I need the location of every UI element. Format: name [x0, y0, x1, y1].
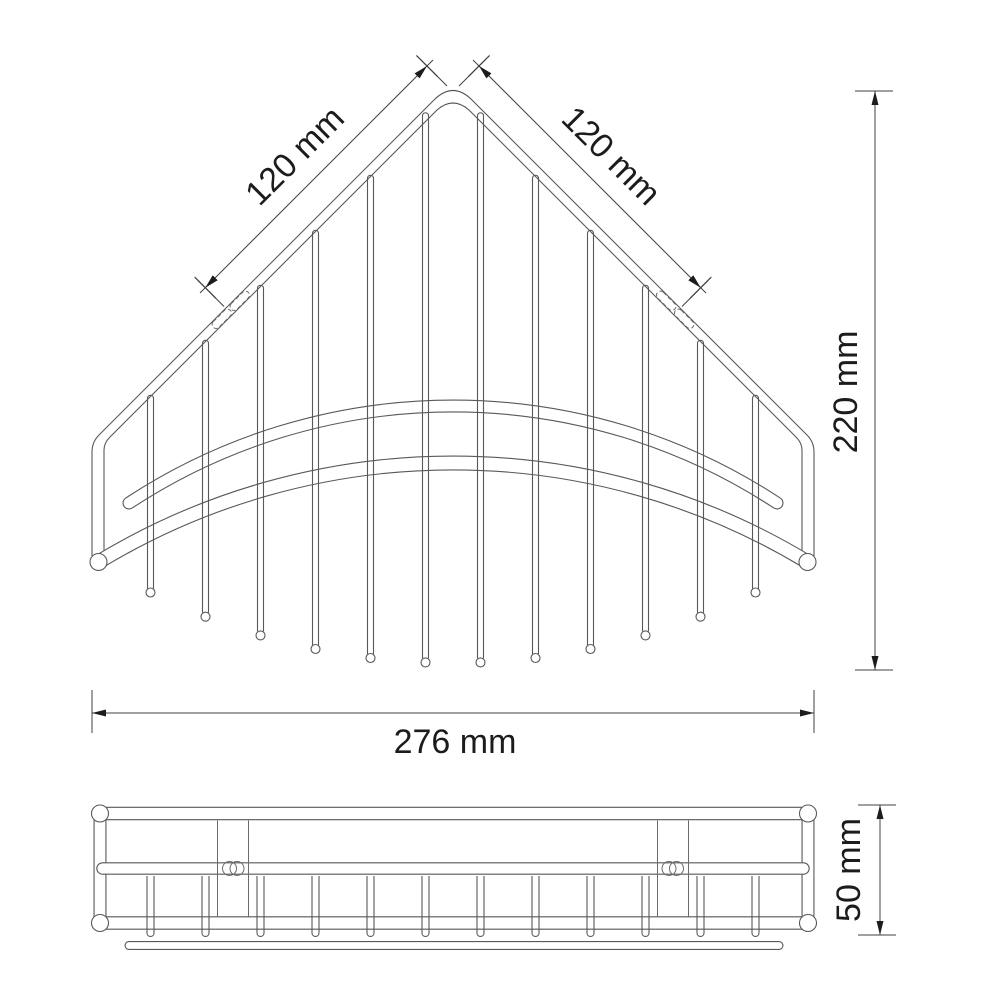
bottom-rail-left-cap — [92, 915, 109, 932]
drawing-canvas: 120 mm 120 mm 220 mm 276 mm 50 mm — [0, 0, 990, 990]
dimension-line — [200, 60, 433, 293]
front-rail-fill — [129, 406, 777, 503]
dimension-label: 220 mm — [827, 331, 865, 454]
top-rail-right-cap — [800, 805, 817, 822]
basket-wires-top — [146, 113, 760, 667]
dimension-width: 276 mm — [92, 690, 814, 761]
wire-loop — [476, 658, 485, 667]
arrowhead — [872, 91, 879, 105]
right-corner-post-cap — [799, 554, 816, 571]
wire-loop — [311, 645, 320, 654]
arrowhead — [877, 805, 884, 819]
front-view — [92, 805, 817, 946]
dimension-label: 120 mm — [238, 99, 352, 213]
basket-wire — [643, 285, 649, 631]
frame-outer-contour — [92, 91, 814, 557]
wire-loop — [751, 588, 760, 597]
wire-loop — [146, 588, 155, 597]
mounting-slot — [228, 289, 251, 312]
bottom-arc-fill — [99, 463, 808, 562]
dimension-edge-left: 120 mm — [195, 55, 447, 306]
wire-loop — [201, 612, 210, 621]
arrowhead — [877, 921, 884, 935]
bottom-rail-right-cap — [800, 915, 817, 932]
wire-loop — [641, 631, 650, 640]
dimension-depth: 220 mm — [827, 91, 893, 670]
arrowhead — [872, 656, 879, 670]
dimension-label: 276 mm — [394, 723, 517, 761]
top-view — [90, 91, 816, 667]
mounting-slot — [210, 307, 233, 330]
wire-loop — [696, 612, 705, 621]
basket-wire — [698, 340, 704, 612]
top-rail-left-cap — [92, 805, 109, 822]
basket-frame — [92, 91, 814, 557]
wire-loop — [421, 658, 430, 667]
dimension-line — [473, 60, 706, 293]
wire-loop — [531, 654, 540, 663]
technical-drawing-page: 120 mm 120 mm 220 mm 276 mm 50 mm — [0, 0, 990, 990]
mounting-slot — [673, 307, 696, 330]
dimension-label: 50 mm — [830, 818, 868, 922]
wire-loop — [256, 631, 265, 640]
left-corner-post-cap — [90, 554, 107, 571]
wire-loop — [366, 654, 375, 663]
basket-wire — [258, 285, 264, 631]
front-rail-tube — [129, 406, 777, 503]
arrowhead — [92, 710, 106, 717]
dimension-edge-right: 120 mm — [459, 55, 711, 306]
dimension-height: 50 mm — [830, 805, 896, 935]
basket-wire — [423, 113, 429, 659]
dimension-label: 120 mm — [554, 99, 668, 213]
bottom-arc-tube — [99, 463, 808, 562]
basket-wire — [588, 230, 594, 645]
wire-loop — [586, 645, 595, 654]
basket-wire — [203, 340, 209, 612]
arrowhead — [800, 710, 814, 717]
basket-wire — [478, 113, 484, 659]
mounting-slot — [655, 289, 678, 312]
basket-wire — [313, 230, 319, 645]
